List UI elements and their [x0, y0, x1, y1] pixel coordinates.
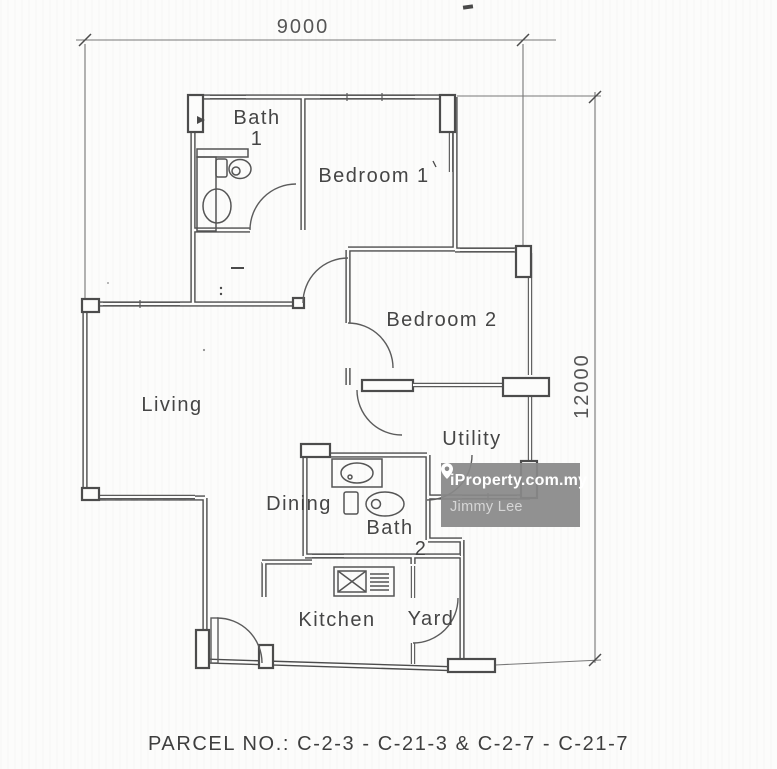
kitchen-sink-icon: [334, 567, 394, 596]
room-label-bath2: Bath: [366, 517, 413, 539]
watermark-brand-text: iProperty.com.my: [450, 472, 587, 490]
watermark-brand-row: iProperty.com.my: [450, 472, 572, 490]
floor-plan-page: 9000 12000: [0, 0, 777, 769]
parcel-number-caption: PARCEL NO.: C-2-3 - C-21-3 & C-2-7 - C-2…: [0, 733, 777, 756]
room-label-kitchen: Kitchen: [298, 609, 375, 631]
room-label-dining: Dining: [266, 493, 332, 515]
dimension-width-label: 9000: [277, 16, 330, 38]
bath2-sink-icon: [332, 459, 382, 487]
dimension-height-label: 12000: [571, 353, 593, 419]
bath1-basin-icon: [203, 189, 231, 223]
bath1-toilet-icon: [216, 159, 251, 179]
room-label-yard: Yard: [408, 608, 455, 630]
room-label-bath2-number: 2: [415, 538, 428, 560]
room-label-bedroom1: Bedroom 1: [318, 165, 429, 187]
watermark-badge: iProperty.com.my Jimmy Lee: [441, 463, 580, 527]
utility-door-arc: [357, 390, 402, 435]
bath2-toilet-icon: [344, 492, 404, 516]
entrance-door-arc: [217, 618, 262, 663]
room-label-utility: Utility: [442, 428, 501, 450]
room-label-bath1: Bath: [233, 107, 280, 129]
watermark-agent-name: Jimmy Lee: [450, 499, 572, 515]
room-label-bath1-number: 1: [251, 128, 264, 150]
dimension-lines: 9000 12000: [76, 16, 601, 666]
hallway-door-arc: [303, 258, 348, 303]
floor-plan-canvas: 9000 12000: [0, 0, 777, 769]
bath1-door-arc: [250, 184, 296, 230]
room-label-living: Living: [141, 394, 202, 416]
windows: [100, 93, 530, 664]
entrance-door-leaf: [211, 618, 218, 663]
room-label-bedroom2: Bedroom 2: [386, 309, 497, 331]
wall-pier: [362, 380, 413, 391]
door-swings: [211, 184, 472, 663]
location-pin-icon: [441, 463, 453, 479]
